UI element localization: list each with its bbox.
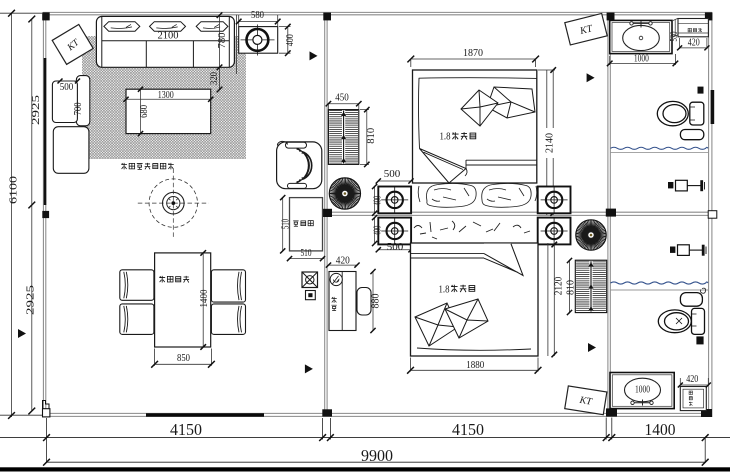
svg-text:580: 580 — [251, 10, 264, 21]
svg-text:1400: 1400 — [645, 420, 676, 439]
svg-text:2925: 2925 — [31, 95, 42, 125]
svg-text:1400: 1400 — [199, 290, 210, 308]
svg-text:1000: 1000 — [634, 54, 649, 65]
svg-text:9900: 9900 — [361, 446, 393, 465]
svg-text:2925: 2925 — [26, 285, 37, 315]
svg-text:420: 420 — [686, 374, 698, 385]
svg-text:780: 780 — [217, 33, 228, 49]
svg-text:400: 400 — [373, 196, 384, 206]
svg-text:6100: 6100 — [9, 176, 20, 204]
svg-text:2140: 2140 — [545, 133, 556, 153]
svg-text:400: 400 — [285, 34, 296, 46]
svg-text:810: 810 — [566, 280, 577, 295]
svg-text:500: 500 — [384, 169, 401, 180]
svg-text:1870: 1870 — [463, 48, 483, 59]
svg-text:400: 400 — [373, 226, 384, 236]
svg-text:1.8: 1.8 — [440, 132, 451, 143]
svg-text:1300: 1300 — [158, 90, 174, 101]
svg-text:810: 810 — [366, 128, 377, 144]
svg-text:700: 700 — [73, 102, 84, 115]
svg-text:4150: 4150 — [170, 420, 202, 439]
svg-text:880: 880 — [370, 294, 381, 309]
svg-text:450: 450 — [335, 93, 349, 104]
svg-text:500: 500 — [60, 82, 74, 93]
svg-text:420: 420 — [688, 38, 700, 49]
svg-text:320: 320 — [209, 72, 220, 85]
svg-text:4150: 4150 — [452, 420, 484, 439]
svg-text:2100: 2100 — [158, 30, 179, 41]
svg-text:1.8: 1.8 — [439, 284, 450, 295]
svg-text:680: 680 — [139, 105, 150, 118]
svg-text:1000: 1000 — [635, 385, 650, 396]
svg-text:420: 420 — [336, 256, 350, 267]
svg-text:2120: 2120 — [554, 277, 565, 296]
svg-text:1880: 1880 — [466, 360, 484, 371]
svg-text:510: 510 — [280, 219, 291, 229]
svg-text:850: 850 — [177, 353, 190, 364]
svg-text:500: 500 — [387, 242, 404, 253]
svg-text:510: 510 — [301, 248, 312, 259]
